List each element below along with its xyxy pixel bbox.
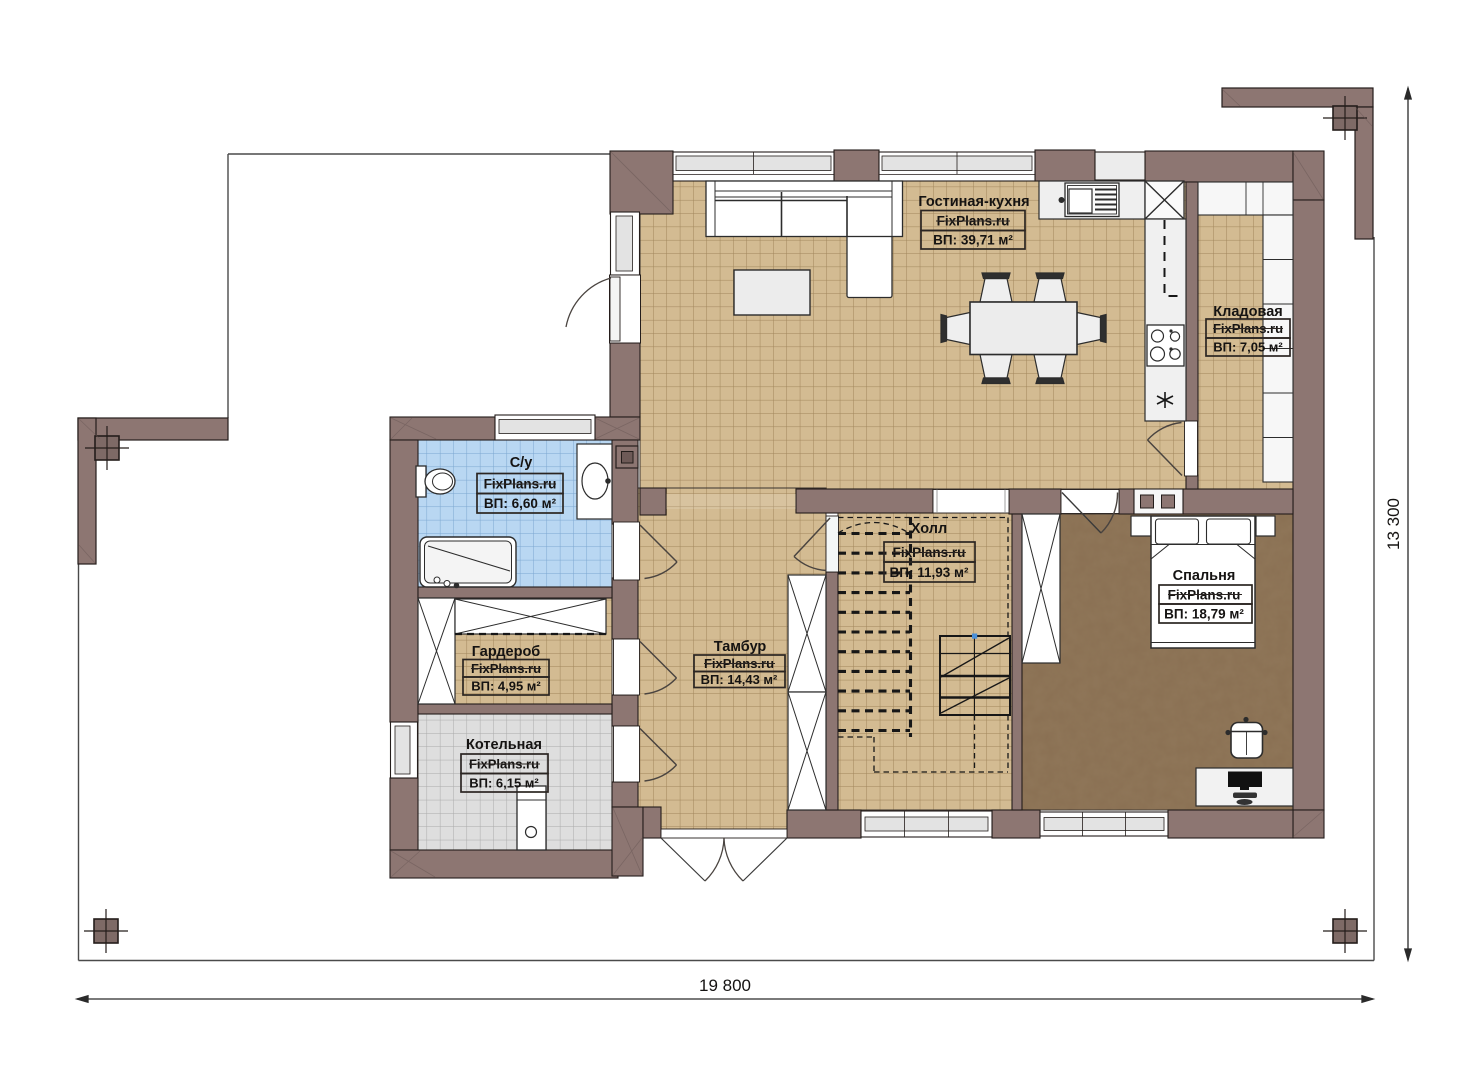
- svg-text:Тамбур: Тамбур: [714, 639, 767, 655]
- svg-text:ВП: 18,79 м²: ВП: 18,79 м²: [1164, 607, 1244, 622]
- svg-text:13 300: 13 300: [1384, 498, 1403, 550]
- svg-text:Спальня: Спальня: [1173, 568, 1236, 584]
- svg-text:С/у: С/у: [510, 455, 533, 471]
- svg-text:Гардероб: Гардероб: [472, 644, 541, 660]
- svg-text:ВП: 6,60 м²: ВП: 6,60 м²: [484, 496, 557, 511]
- svg-text:ВП: 11,93 м²: ВП: 11,93 м²: [890, 565, 969, 580]
- svg-text:ВП: 14,43 м²: ВП: 14,43 м²: [701, 672, 778, 687]
- svg-text:Кладовая: Кладовая: [1213, 304, 1282, 320]
- svg-text:Гостиная-кухня: Гостиная-кухня: [918, 194, 1029, 210]
- svg-text:Котельная: Котельная: [466, 737, 542, 753]
- svg-text:ВП: 39,71 м²: ВП: 39,71 м²: [933, 233, 1013, 248]
- svg-text:ВП: 7,05 м²: ВП: 7,05 м²: [1213, 340, 1283, 355]
- svg-text:19 800: 19 800: [699, 976, 751, 995]
- svg-text:ВП: 4,95 м²: ВП: 4,95 м²: [471, 679, 541, 694]
- svg-text:ВП: 6,15 м²: ВП: 6,15 м²: [469, 776, 539, 791]
- svg-text:Холл: Холл: [911, 521, 947, 537]
